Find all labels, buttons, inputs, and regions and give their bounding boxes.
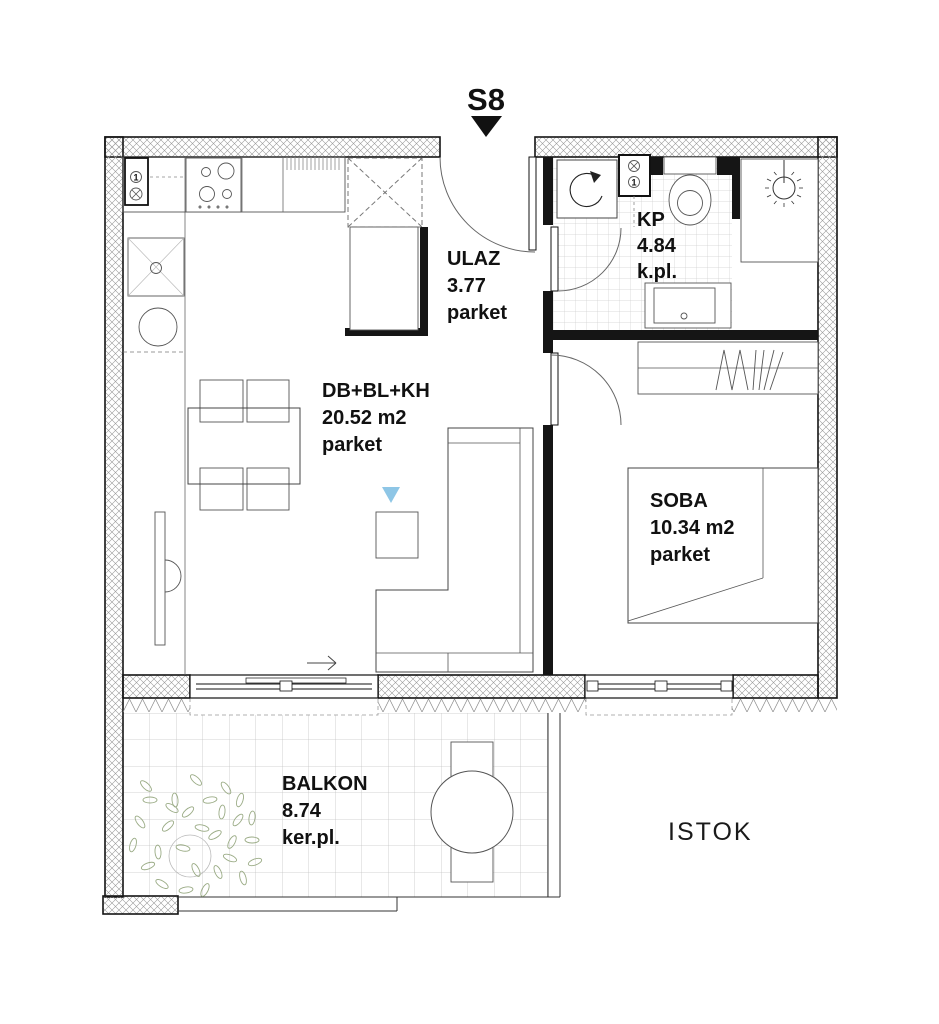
- kp-area: 4.84: [637, 235, 677, 257]
- direction-label: ISTOK: [668, 818, 753, 846]
- soba-furniture: [628, 342, 818, 623]
- ulaz-name: ULAZ: [447, 248, 500, 270]
- ulaz-area: 3.77: [447, 275, 486, 297]
- soba-window-sill: [586, 698, 732, 715]
- balkon-name: BALKON: [282, 773, 368, 795]
- wall-top-right: [535, 137, 837, 157]
- ulaz-floor: parket: [447, 302, 507, 324]
- bathroom-door-leaf: [551, 227, 558, 291]
- window-frame-block: [587, 681, 598, 691]
- counter-vent-grill: [285, 157, 342, 170]
- wall-bottom-a: [123, 675, 190, 698]
- installation-shaft: [619, 155, 650, 196]
- soba-floor: parket: [650, 544, 710, 566]
- wall-bottom-c: [733, 675, 818, 698]
- toilet-bowl: [669, 175, 711, 225]
- wall-living-soba: [543, 425, 553, 675]
- unit-label: S8: [467, 82, 505, 117]
- balkon-floor: ker.pl.: [282, 827, 340, 849]
- entry-cabinet: [350, 227, 418, 330]
- bathroom-counter: [645, 283, 731, 328]
- wall-closet-vertical: [420, 227, 428, 336]
- shaft-number: 1: [133, 173, 138, 183]
- wall-corridor-kp-upper: [543, 157, 553, 225]
- washing-machine: [557, 160, 617, 218]
- entry-door-leaf: [529, 157, 536, 250]
- wall-right: [818, 137, 837, 698]
- dining-chair: [247, 468, 289, 510]
- floor-plan: S8: [0, 0, 939, 1024]
- wall-bottom-b: [378, 675, 585, 698]
- slider-panel: [246, 678, 346, 683]
- wall-top-left: [105, 137, 440, 157]
- living-floor: parket: [322, 434, 382, 456]
- dining-chair: [200, 468, 243, 510]
- kp-floor: k.pl.: [637, 261, 677, 283]
- wall-corridor-kp-lower: [543, 291, 553, 353]
- soba-area: 10.34 m2: [650, 517, 735, 539]
- balcony-table: [431, 771, 513, 853]
- wall-left: [105, 137, 123, 897]
- wall-kp-soba: [543, 330, 818, 340]
- window-frame-block: [721, 681, 732, 691]
- living-name: DB+BL+KH: [322, 380, 430, 402]
- living-area: 20.52 m2: [322, 407, 407, 429]
- coffee-table: [376, 512, 418, 558]
- wall-toilet-stub-right: [717, 157, 736, 175]
- balcony-wall-stub: [103, 896, 178, 914]
- toilet-cistern: [664, 157, 716, 174]
- soba-name: SOBA: [650, 490, 708, 512]
- window-frame-block: [655, 681, 667, 691]
- shaft-number: 1: [631, 178, 636, 188]
- radiator: [155, 512, 165, 645]
- shower-tray: [741, 159, 818, 262]
- soba-door-leaf: [551, 353, 558, 425]
- slider-mullion: [280, 681, 292, 691]
- kp-name: KP: [637, 209, 665, 231]
- dining-chair: [247, 380, 289, 422]
- balkon-area: 8.74: [282, 800, 322, 822]
- dining-chair: [200, 380, 243, 422]
- living-window-sill: [190, 698, 378, 715]
